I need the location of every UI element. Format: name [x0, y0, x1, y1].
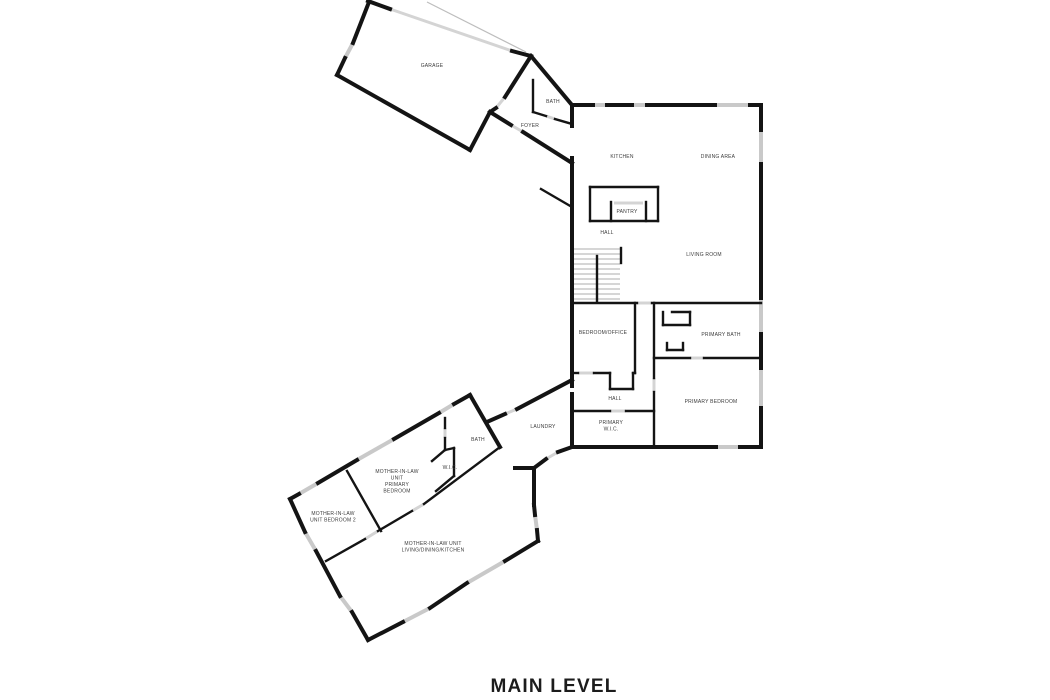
- window-segment: [439, 404, 454, 413]
- room-label-primary-wic: PRIMARYW.I.C.: [599, 420, 624, 433]
- exterior-wall: [353, 2, 369, 43]
- interior-wall: [541, 189, 572, 207]
- room-label-pantry: PANTRY: [616, 209, 637, 215]
- room-label-bedroom-office: BEDROOM/OFFICE: [579, 330, 628, 336]
- exterior-wall: [523, 132, 572, 163]
- windows-layer: [299, 43, 761, 622]
- exterior-wall: [517, 380, 572, 409]
- room-label-entry-bath: BATH: [546, 99, 560, 105]
- interior-wall: [326, 539, 365, 561]
- interior-wall: [378, 511, 412, 531]
- room-labels-layer: GARAGEBATHFOYERKITCHENDINING AREAPANTRYH…: [310, 63, 741, 554]
- exterior-wall: [316, 551, 340, 596]
- exterior-wall: [487, 414, 505, 422]
- room-label-dining-area: DINING AREA: [701, 154, 736, 160]
- floorplan-canvas: GARAGEBATHFOYERKITCHENDINING AREAPANTRYH…: [0, 0, 1050, 700]
- exterior-wall: [368, 1, 390, 9]
- room-label-mil-bath: BATH: [471, 437, 485, 443]
- door-opening: [496, 97, 505, 108]
- room-label-mil-bedroom-2: MOTHER-IN-LAWUNIT BEDROOM 2: [310, 511, 356, 524]
- window-segment: [299, 483, 318, 494]
- window-segment: [467, 561, 505, 583]
- exterior-wall: [558, 447, 572, 452]
- door-opening: [546, 452, 558, 459]
- interior-wall: [445, 448, 454, 450]
- room-label-mil-primary-bedroom: MOTHER-IN-LAWUNITPRIMARYBEDROOM: [375, 469, 418, 495]
- door-opening: [546, 116, 555, 119]
- exterior-wall: [505, 541, 538, 561]
- room-label-garage: GARAGE: [421, 63, 444, 69]
- window-segment: [345, 43, 353, 58]
- room-label-living-room: LIVING ROOM: [686, 252, 722, 258]
- exterior-wall: [430, 583, 467, 608]
- room-label-primary-bedroom: PRIMARY BEDROOM: [685, 399, 738, 405]
- exterior-wall: [368, 622, 403, 640]
- window-segment: [357, 439, 394, 460]
- exterior-wall: [512, 51, 531, 56]
- room-label-hall-upper: HALL: [600, 230, 613, 236]
- exterior-wall: [505, 56, 531, 97]
- doors-layer: [365, 9, 704, 539]
- interior-wall: [424, 447, 500, 504]
- window-segment: [535, 515, 537, 530]
- exterior-wall: [394, 413, 439, 439]
- window-segment: [305, 532, 316, 551]
- door-opening: [412, 504, 424, 511]
- room-label-mil-wic: W.I.C.: [443, 465, 458, 471]
- exterior-wall: [337, 58, 345, 75]
- room-label-hall-lower: HALL: [608, 396, 621, 402]
- room-label-mil-living: MOTHER-IN-LAW UNITLIVING/DINING/KITCHEN: [402, 541, 465, 554]
- window-segment: [340, 596, 352, 612]
- floorplan-page: GARAGEBATHFOYERKITCHENDINING AREAPANTRYH…: [0, 0, 1050, 700]
- door-opening: [390, 9, 512, 51]
- interior-wall: [432, 450, 445, 461]
- room-label-foyer: FOYER: [521, 123, 539, 129]
- interior-wall: [533, 112, 546, 116]
- room-label-kitchen: KITCHEN: [610, 154, 634, 160]
- exterior-wall: [490, 112, 511, 125]
- thin-lines-layer: [427, 2, 621, 299]
- plan-title: MAIN LEVEL: [490, 676, 617, 697]
- exterior-wall: [337, 75, 470, 150]
- exterior-wall: [352, 612, 368, 640]
- exterior-wall: [454, 395, 470, 404]
- room-label-laundry: LAUNDRY: [530, 424, 556, 430]
- exterior-wall: [531, 56, 572, 105]
- exterior-wall: [470, 112, 490, 150]
- exterior-wall: [290, 499, 305, 532]
- room-label-primary-bath: PRIMARY BATH: [701, 332, 741, 338]
- window-segment: [403, 608, 430, 622]
- door-opening: [365, 531, 378, 539]
- exterior-wall: [534, 505, 535, 515]
- interior-wall: [555, 119, 572, 124]
